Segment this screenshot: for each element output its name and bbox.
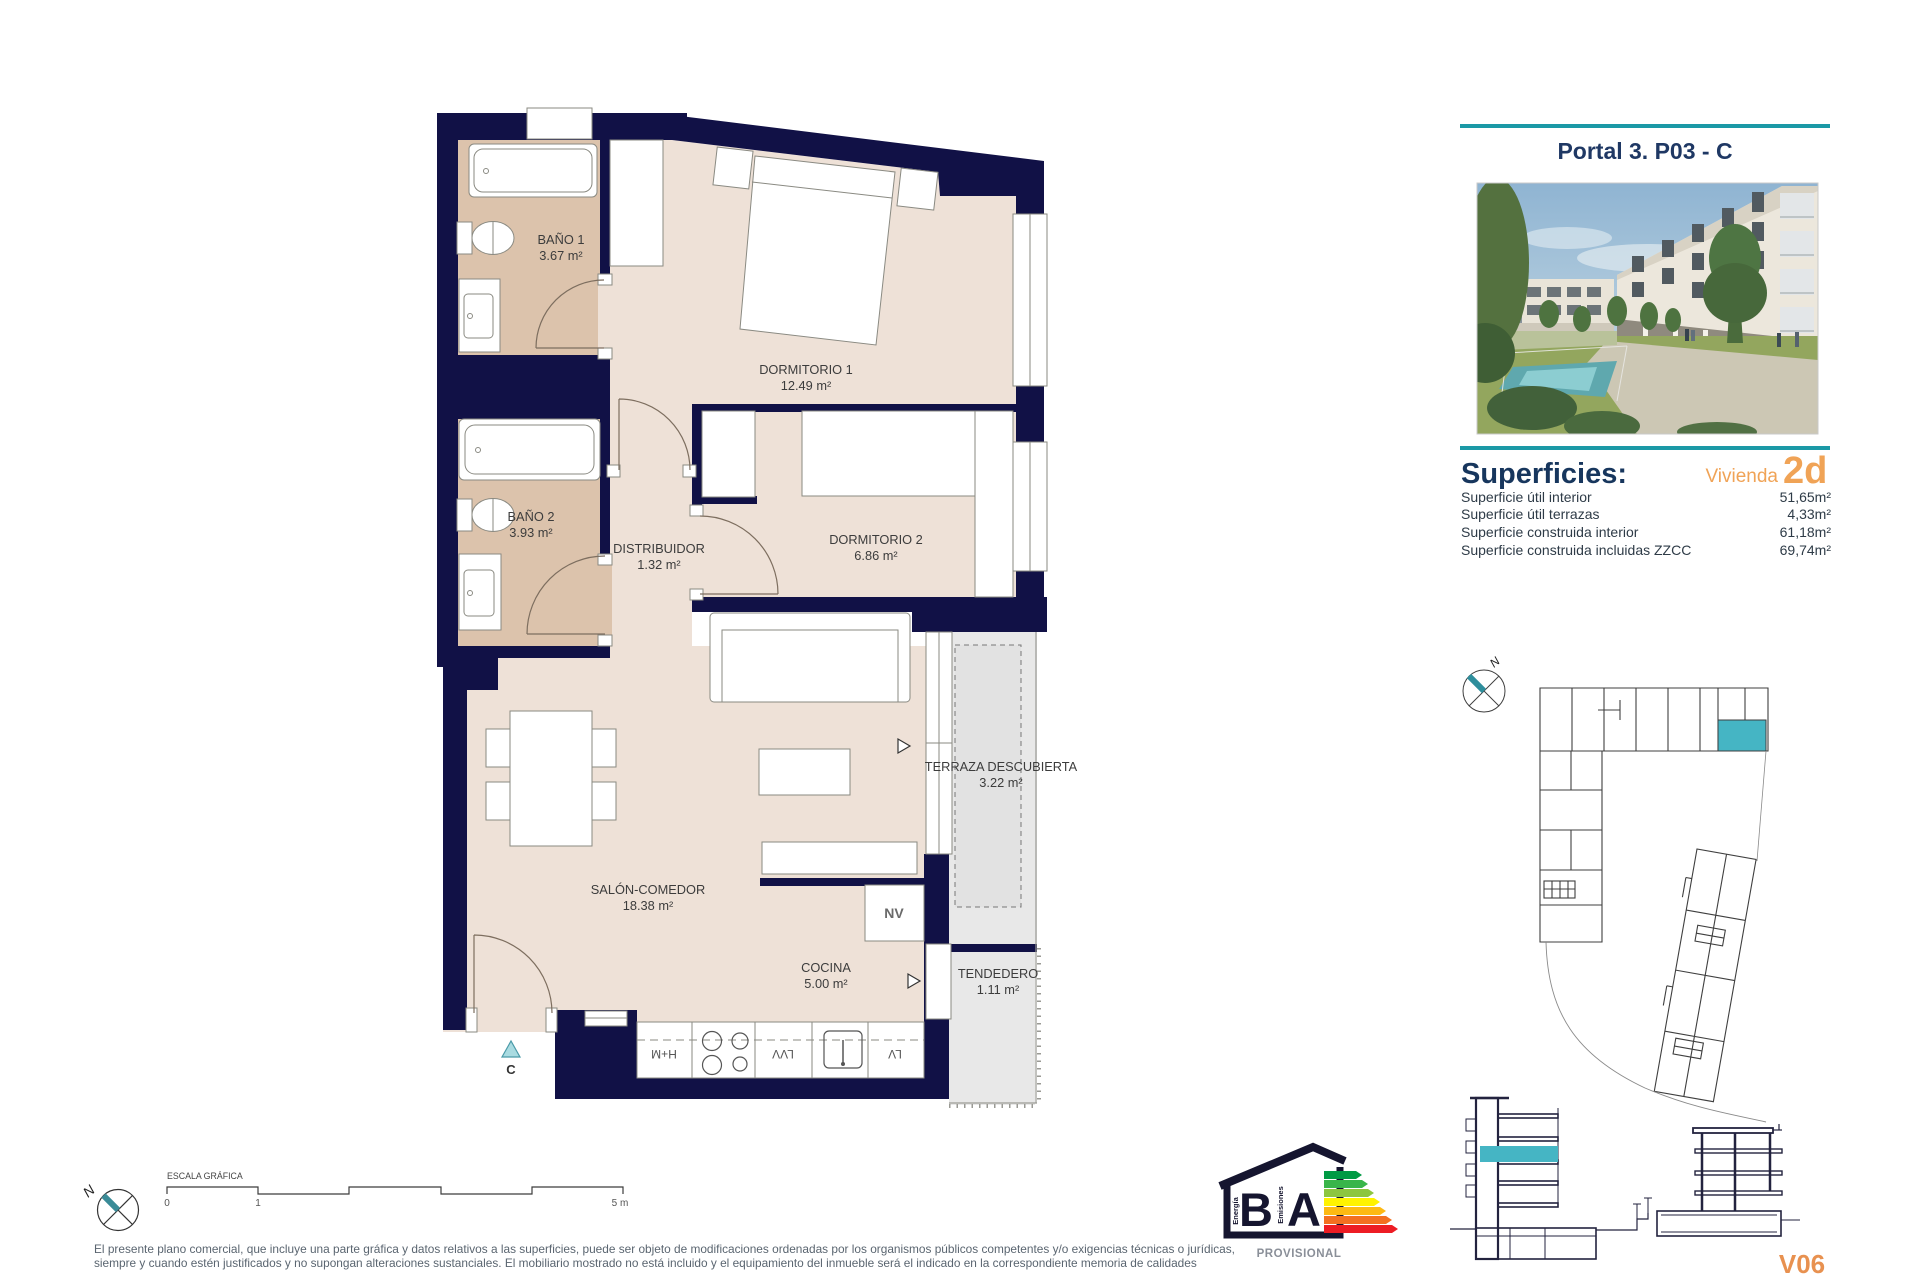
svg-text:4,33m²: 4,33m² <box>1787 506 1831 522</box>
svg-text:NV: NV <box>884 905 904 921</box>
svg-text:LV: LV <box>888 1047 902 1061</box>
svg-text:3.67 m²: 3.67 m² <box>539 248 583 263</box>
svg-text:3.93 m²: 3.93 m² <box>509 525 553 540</box>
svg-text:LVV: LVV <box>772 1047 794 1061</box>
svg-text:ESCALA GRÁFICA: ESCALA GRÁFICA <box>167 1171 243 1181</box>
svg-text:COCINA: COCINA <box>801 960 851 975</box>
svg-text:Superficie útil interior: Superficie útil interior <box>1461 489 1592 505</box>
svg-text:1: 1 <box>255 1198 261 1209</box>
svg-text:5 m: 5 m <box>612 1198 629 1209</box>
svg-text:61,18m²: 61,18m² <box>1780 524 1832 540</box>
svg-text:H+M: H+M <box>651 1047 677 1061</box>
svg-text:DORMITORIO 2: DORMITORIO 2 <box>829 532 923 547</box>
svg-text:0: 0 <box>164 1198 170 1209</box>
svg-text:Superficie construida interior: Superficie construida interior <box>1461 524 1639 540</box>
svg-text:A: A <box>1287 1183 1321 1236</box>
svg-text:1.32 m²: 1.32 m² <box>637 557 681 572</box>
svg-text:V06: V06 <box>1779 1249 1825 1279</box>
svg-text:69,74m²: 69,74m² <box>1780 542 1832 558</box>
svg-text:Superficie útil terrazas: Superficie útil terrazas <box>1461 506 1600 522</box>
svg-text:DORMITORIO 1: DORMITORIO 1 <box>759 362 853 377</box>
svg-text:PROVISIONAL: PROVISIONAL <box>1257 1248 1342 1260</box>
svg-text:6.86 m²: 6.86 m² <box>854 548 898 563</box>
svg-text:BAÑO 1: BAÑO 1 <box>538 232 585 247</box>
svg-text:3.22 m²: 3.22 m² <box>979 775 1023 790</box>
svg-text:siempre y cuando estén justifi: siempre y cuando estén justificados y no… <box>94 1256 1197 1270</box>
svg-text:Superficies:: Superficies: <box>1461 458 1627 490</box>
svg-text:12.49 m²: 12.49 m² <box>781 378 832 393</box>
svg-text:Portal 3. P03 - C: Portal 3. P03 - C <box>1557 138 1732 164</box>
svg-text:B: B <box>1239 1183 1273 1236</box>
svg-text:BAÑO 2: BAÑO 2 <box>508 509 555 524</box>
svg-text:Vivienda: Vivienda <box>1705 466 1778 487</box>
svg-text:DISTRIBUIDOR: DISTRIBUIDOR <box>613 541 705 556</box>
svg-text:51,65m²: 51,65m² <box>1780 489 1832 505</box>
svg-text:5.00 m²: 5.00 m² <box>804 976 848 991</box>
svg-text:2d: 2d <box>1783 450 1827 492</box>
svg-text:C: C <box>506 1062 516 1077</box>
svg-text:1.11 m²: 1.11 m² <box>977 982 1020 997</box>
svg-text:Emisiones: Emisiones <box>1276 1186 1285 1224</box>
svg-text:TERRAZA DESCUBIERTA: TERRAZA DESCUBIERTA <box>925 759 1078 774</box>
svg-text:El presente plano comercial, q: El presente plano comercial, que incluye… <box>94 1242 1235 1256</box>
svg-text:18.38 m²: 18.38 m² <box>623 898 674 913</box>
svg-text:Energía: Energía <box>1231 1196 1240 1224</box>
svg-text:Superficie construida incluida: Superficie construida incluidas ZZCC <box>1461 542 1691 558</box>
svg-text:SALÓN-COMEDOR: SALÓN-COMEDOR <box>591 882 705 897</box>
svg-text:TENDEDERO: TENDEDERO <box>958 966 1038 981</box>
